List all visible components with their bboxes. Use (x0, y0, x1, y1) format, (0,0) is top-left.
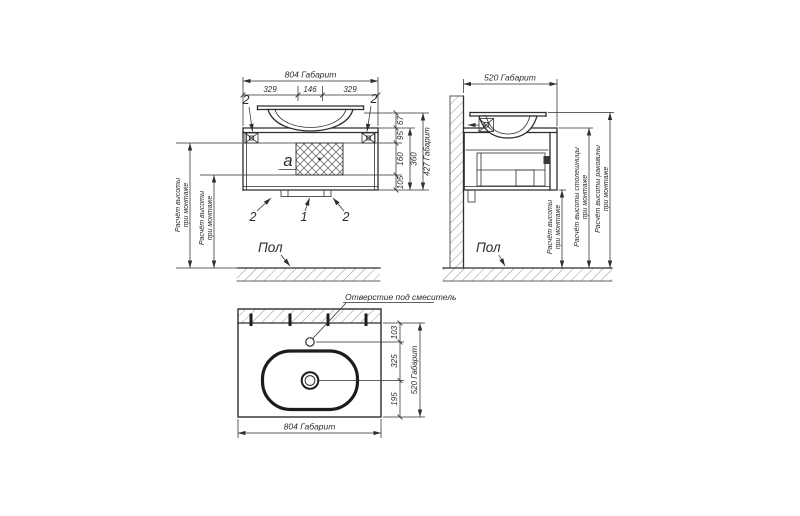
front-dim-146: 146 (303, 85, 317, 94)
front-callout-foot-right: 2 (342, 210, 350, 224)
drawer-handle (544, 156, 550, 164)
front-callout-bracket-left: 2 (242, 93, 250, 107)
front-detail-label: а (283, 152, 292, 170)
top-dim-195: 195 (390, 392, 399, 406)
cabinet-side (464, 128, 558, 202)
cabinet-foot (468, 190, 475, 202)
front-dim-160: 160 (396, 152, 405, 166)
front-dim-360: 360 (410, 152, 419, 166)
side-depth-dimension: 520 Габарит (484, 73, 536, 83)
floor-front (237, 268, 380, 281)
faucet-hole-label: Отверстие под смеситель (345, 292, 456, 302)
front-dim-95: 95 (396, 131, 405, 140)
front-mount-outer-text2: при монтаже (183, 183, 190, 228)
side-mount-sink-text1: Расчёт высоты раковины (595, 144, 602, 233)
top-dim-325: 325 (390, 354, 399, 368)
sink-side (470, 113, 546, 139)
top-dim-103: 103 (390, 325, 399, 339)
side-mount-counter-text2: при монтаже (582, 175, 589, 220)
sink-front (258, 106, 364, 131)
mount-bracket-left-icon (245, 133, 258, 143)
drain (302, 372, 404, 389)
top-dim-804: 804 Габарит (284, 422, 336, 432)
wall-section (450, 96, 464, 268)
countertop-outline (238, 309, 381, 417)
side-mount-cabinet-text2: при монтаже (555, 205, 562, 250)
front-callout-bracket-right: 2 (370, 92, 378, 106)
front-dim-329-left: 329 (263, 85, 277, 94)
front-dim-427: 427 Габарит (423, 127, 432, 176)
side-floor-label: Пол (476, 240, 501, 255)
front-callout-trap: 1 (301, 210, 308, 224)
front-dim-67: 67 (396, 116, 405, 125)
mount-bracket-right-icon (362, 133, 375, 143)
drawer-side (477, 153, 545, 186)
faucet-hole (306, 338, 314, 346)
front-floor-label: Пол (258, 240, 283, 255)
top-dim-520: 520 Габарит (410, 345, 419, 394)
front-callout-foot-left: 2 (249, 210, 257, 224)
front-dim-105: 105 (396, 175, 405, 189)
side-view: 520 Габарит (443, 73, 614, 282)
top-view: Отверстие под смеситель 103 325 195 520 … (238, 292, 456, 438)
front-mount-inner-text2: при монтаже (207, 196, 214, 241)
trap-cover (281, 190, 331, 197)
front-mount-inner-text1: Расчёт высоты (199, 190, 206, 245)
front-width-dimension: 804 Габарит (285, 70, 337, 80)
drawing-page: 804 Габарит 329 146 329 (0, 0, 800, 516)
front-view: 804 Габарит 329 146 329 (175, 70, 432, 282)
front-dim-329-right: 329 (343, 85, 357, 94)
floor-side (443, 268, 612, 281)
side-mount-cabinet-text1: Расчёт высоты (547, 199, 554, 254)
technical-drawing: 804 Габарит 329 146 329 (0, 0, 800, 516)
side-mount-counter-text1: Расчёт высоты столешницы (574, 146, 581, 247)
wall-band (238, 309, 381, 323)
side-mount-sink-text2: при монтаже (603, 167, 610, 212)
front-mount-outer-text1: Расчёт высоты (175, 177, 182, 232)
